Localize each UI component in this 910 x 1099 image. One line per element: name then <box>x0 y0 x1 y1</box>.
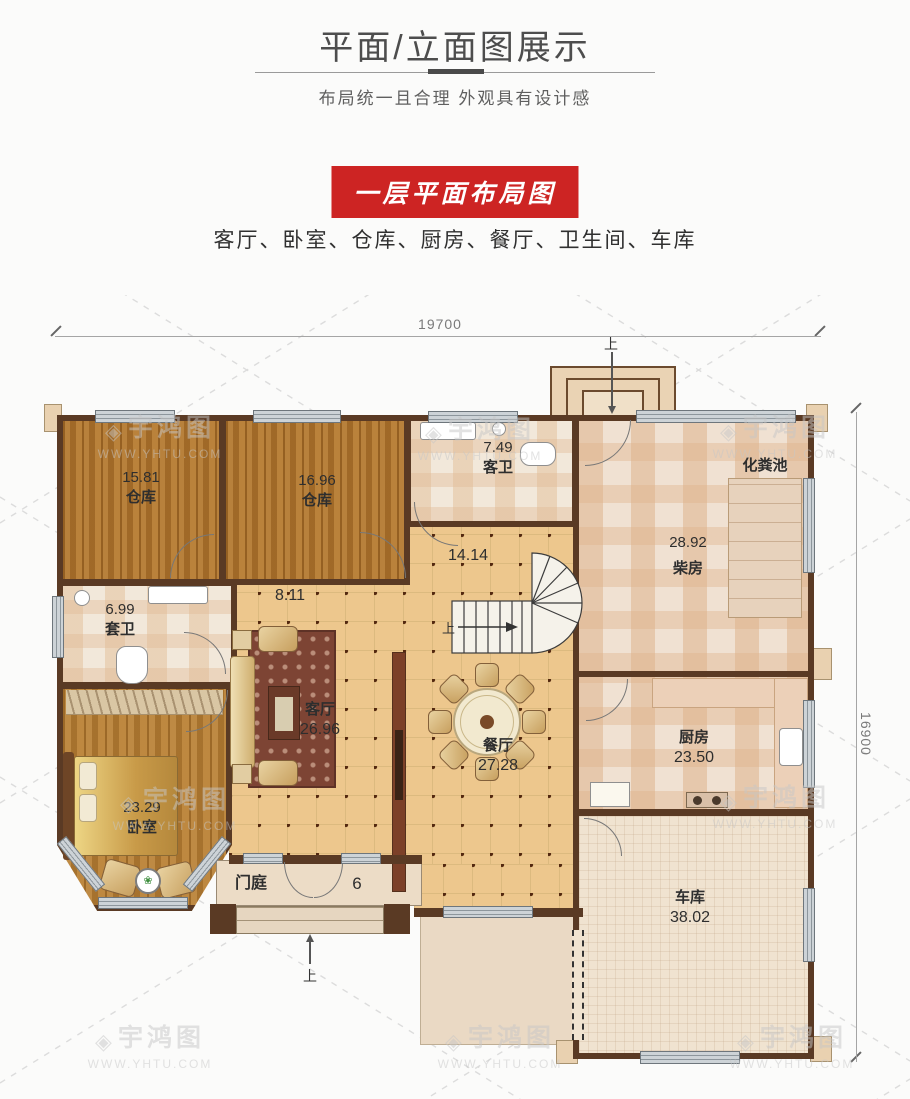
guest-bath-area: 7.49 <box>458 438 538 458</box>
window <box>253 410 341 423</box>
living-area: 26.96 <box>280 720 360 741</box>
living-name: 客厅 <box>305 701 335 718</box>
page-title: 平面/立面图展示 <box>0 20 910 69</box>
storage1-label: 15.81 仓库 <box>101 468 181 507</box>
window <box>636 410 796 423</box>
right-dimension-line <box>856 412 857 1062</box>
ensuite-bath-name: 套卫 <box>105 621 135 638</box>
window <box>443 906 533 918</box>
bed-pillow <box>79 762 97 790</box>
window <box>243 853 283 864</box>
garage-door-dashed <box>572 930 584 1040</box>
dining-area: 27.28 <box>458 756 538 777</box>
stair-up-label: 上 <box>442 621 455 636</box>
window <box>803 700 815 788</box>
living-label: 客厅 26.96 <box>280 700 360 740</box>
porch-steps <box>236 906 384 934</box>
storage2-area: 16.96 <box>277 471 357 491</box>
tv <box>395 730 403 800</box>
hallway-area-label: 8.11 <box>250 586 330 607</box>
dining-chair <box>475 663 499 687</box>
window <box>803 478 815 573</box>
bedroom-area: 23.29 <box>102 798 182 818</box>
dining-table-center <box>480 715 494 729</box>
garage-label: 车库 38.02 <box>650 888 730 928</box>
bay-window <box>98 897 188 909</box>
front-up-label: 上 <box>303 966 317 986</box>
storage2-label: 16.96 仓库 <box>277 471 357 510</box>
porch-width-label: 6 <box>342 873 372 895</box>
front-up-arrow <box>309 940 311 964</box>
room-list: 客厅、卧室、仓库、厨房、餐厅、卫生间、车库 <box>0 224 910 254</box>
armchair <box>258 760 298 786</box>
porch-name-label: 门庭 <box>216 874 286 895</box>
guest-bath-label: 7.49 客卫 <box>458 438 538 477</box>
bedroom-name: 卧室 <box>127 819 157 836</box>
kitchen-sink <box>779 728 803 766</box>
ensuite-bath-label: 6.99 套卫 <box>80 600 160 639</box>
side-table <box>232 764 252 784</box>
wall-clock-icon <box>492 422 506 436</box>
rear-up-label: 上 <box>604 334 618 354</box>
bedroom-label: 23.29 卧室 <box>102 798 182 837</box>
kitchen-stove <box>686 792 728 808</box>
ensuite-toilet <box>116 646 148 684</box>
front-up-arrowhead <box>306 934 314 942</box>
ensuite-bath-area: 6.99 <box>80 600 160 620</box>
driveway-apron <box>420 917 577 1045</box>
sofa-long <box>230 656 255 768</box>
window <box>640 1051 740 1064</box>
kitchen-name: 厨房 <box>679 729 709 746</box>
storage1-area: 15.81 <box>101 468 181 488</box>
page: 平面/立面图展示 布局统一且合理 外观具有设计感 一层平面布局图 客厅、卧室、仓… <box>0 0 910 1099</box>
porch-column <box>384 904 410 934</box>
title-divider-accent <box>428 69 484 74</box>
top-dimension-line <box>55 336 821 337</box>
total-height-dimension: 16900 <box>858 704 874 764</box>
firewood-name: 柴房 <box>648 559 728 579</box>
side-table <box>232 630 252 650</box>
rear-up-arrow <box>611 352 613 408</box>
dining-chair <box>428 710 452 734</box>
kitchen-area: 23.50 <box>654 748 734 769</box>
dining-label: 餐厅 27.28 <box>458 736 538 776</box>
firewood-area: 28.92 <box>648 533 728 553</box>
window <box>341 853 381 864</box>
storage1-name: 仓库 <box>126 489 156 506</box>
page-subtitle: 布局统一且合理 外观具有设计感 <box>0 84 910 109</box>
window <box>95 410 175 423</box>
section-banner: 一层平面布局图 <box>331 166 578 218</box>
dining-name: 餐厅 <box>483 737 513 754</box>
bedroom-side-table: ❀ <box>135 868 161 894</box>
window <box>52 596 64 658</box>
total-width-dimension: 19700 <box>400 316 480 332</box>
septic-tank-label: 化粪池 <box>725 456 805 476</box>
garage-name: 车库 <box>675 889 705 906</box>
rear-up-arrowhead <box>608 406 616 414</box>
window <box>428 411 518 423</box>
porch-column <box>210 904 236 934</box>
burner-icon <box>712 796 721 805</box>
storage2-name: 仓库 <box>302 492 332 509</box>
garage-area: 38.02 <box>650 908 730 929</box>
burner-icon <box>693 796 702 805</box>
septic-tank <box>728 478 802 618</box>
armchair <box>258 626 298 652</box>
guest-bath-name: 客卫 <box>483 459 513 476</box>
bed-pillow <box>79 794 97 822</box>
stair-hall-area-label: 14.14 <box>428 546 508 567</box>
kitchen-label: 厨房 23.50 <box>654 728 734 768</box>
kitchen-fridge <box>590 782 630 807</box>
dining-chair <box>522 710 546 734</box>
firewood-label: 28.92 柴房 <box>648 533 728 578</box>
window <box>803 888 815 962</box>
